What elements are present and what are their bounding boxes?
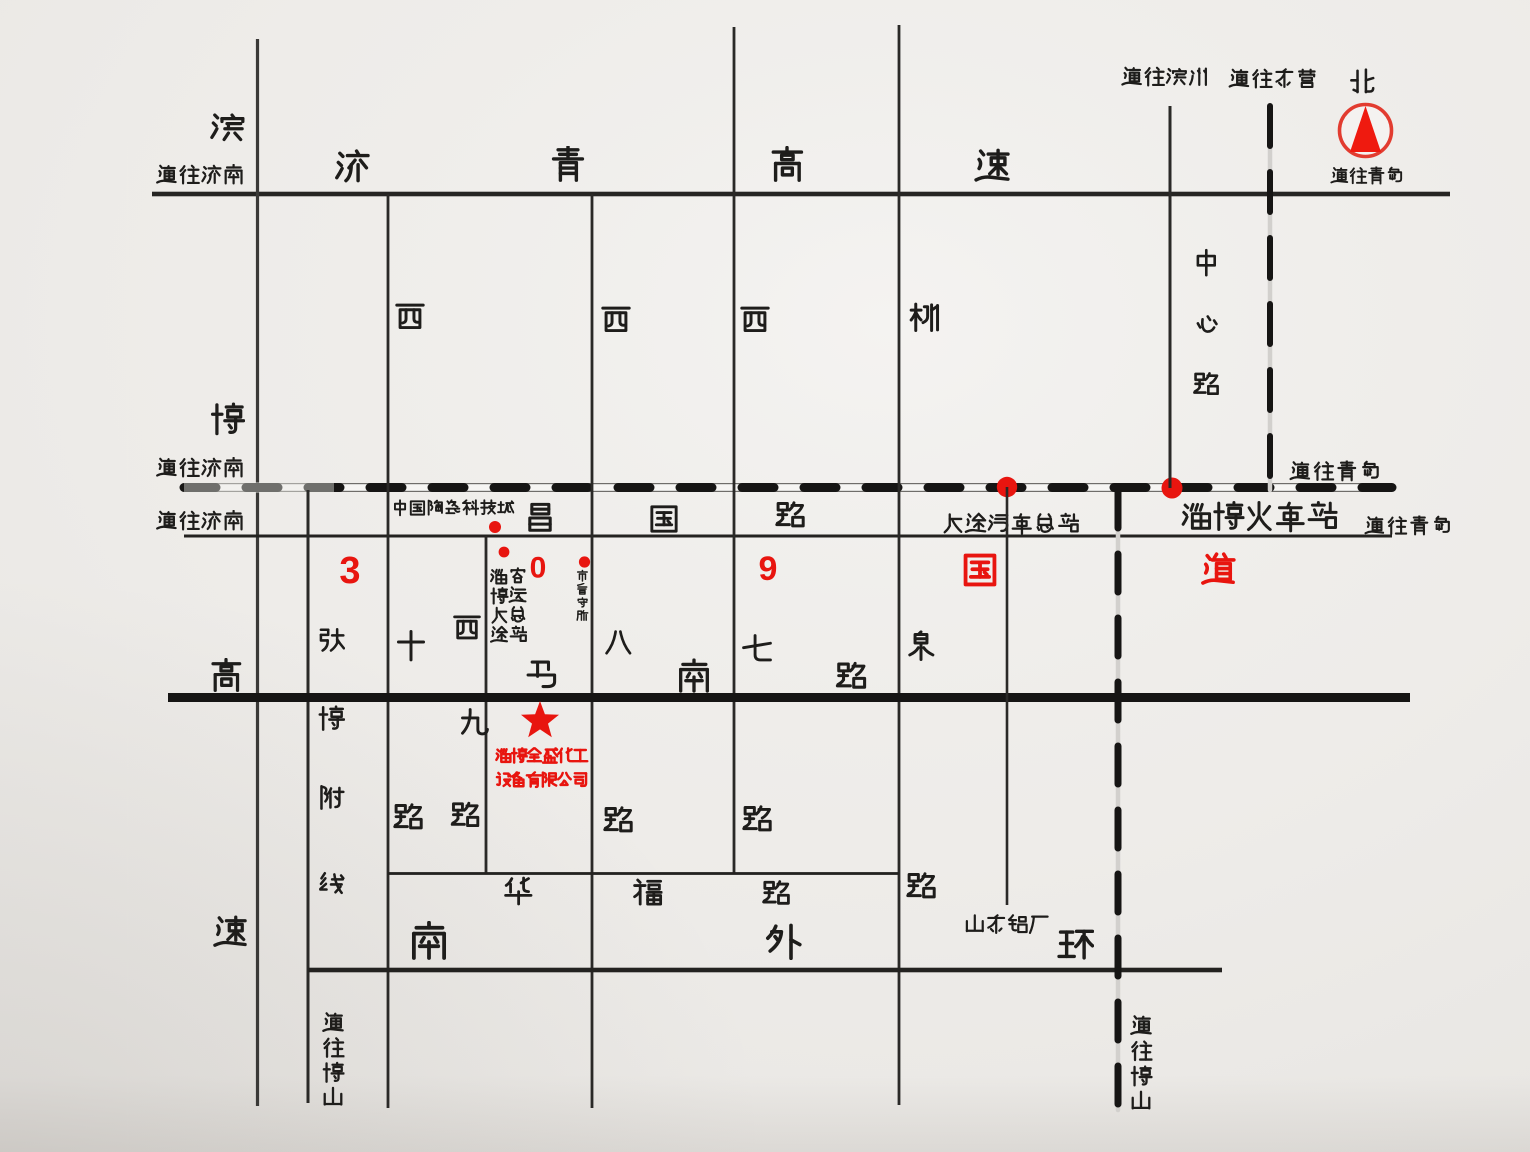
svg-text:0: 0 bbox=[530, 552, 547, 585]
svg-text:9: 9 bbox=[759, 550, 778, 588]
svg-text:3: 3 bbox=[339, 550, 360, 592]
